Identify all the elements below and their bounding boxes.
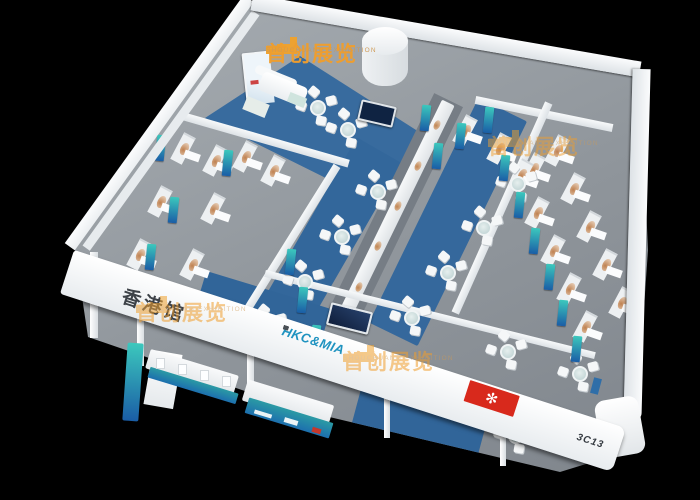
chair	[455, 259, 467, 270]
cubicle-pod	[175, 250, 215, 282]
chair	[349, 223, 361, 234]
teal-banner	[167, 197, 179, 224]
glass-table	[370, 184, 386, 200]
watermark-latin-text: SHOUCHUANG EXHIBITION	[136, 306, 247, 313]
chair	[355, 183, 367, 195]
chair	[577, 381, 588, 392]
chair	[312, 268, 324, 279]
pod-desk	[537, 214, 555, 227]
chair	[325, 121, 337, 133]
chair	[461, 219, 473, 231]
brochure-holder	[156, 358, 165, 369]
chair	[385, 178, 397, 189]
chair	[319, 228, 331, 240]
glass-table	[340, 122, 356, 138]
booth-number: 3C13	[575, 432, 605, 451]
chair	[339, 244, 350, 255]
booth-render-scene: 香港馆 HKC&MIA ✻ 3C13 首创展览SHOUCHUANG EXHIBI…	[0, 0, 700, 500]
front-left-banner	[122, 343, 143, 422]
pod-desk	[273, 172, 291, 185]
chair	[525, 170, 537, 181]
cubicle-pod	[552, 274, 592, 306]
pod-desk	[213, 210, 231, 223]
chair	[345, 137, 356, 148]
glass-table	[500, 344, 516, 360]
cubicle-pod	[536, 236, 576, 268]
pod-desk	[553, 252, 571, 265]
glass-table	[476, 220, 492, 236]
chair	[491, 214, 503, 225]
meeting-table-group	[390, 298, 434, 338]
watermark-latin-text: SHOUCHUANG EXHIBITION	[266, 47, 377, 54]
brochure-holder	[200, 370, 209, 381]
chair	[389, 309, 401, 321]
chair	[445, 280, 456, 291]
cubicle-pod	[572, 212, 612, 244]
chair	[425, 264, 437, 276]
brochure-holder	[178, 364, 187, 375]
glass-table	[510, 176, 526, 192]
chair	[513, 443, 524, 454]
meeting-table-group	[462, 208, 506, 248]
chair	[315, 115, 326, 126]
brochure-holder	[222, 376, 231, 387]
chair	[481, 235, 492, 246]
hk-flag-emblem-icon: ✻	[483, 389, 500, 407]
cubicle-pod	[588, 250, 628, 282]
teal-banner	[431, 143, 443, 170]
watermark-latin-text: SHOUCHUANG EXHIBITION	[343, 355, 454, 362]
glass-table	[404, 310, 420, 326]
glass-table	[572, 366, 588, 382]
cubicle-pod	[256, 156, 296, 188]
pod-desk	[585, 328, 603, 341]
glass-table	[334, 229, 350, 245]
meeting-table-group	[486, 332, 530, 372]
teal-banner	[556, 300, 568, 327]
chair	[419, 304, 431, 315]
chair	[557, 365, 569, 377]
pod-desk	[605, 266, 623, 279]
pod-desk	[569, 290, 587, 303]
chair	[325, 94, 337, 105]
chair	[515, 338, 527, 349]
meeting-table-group	[426, 253, 470, 293]
chair	[375, 199, 386, 210]
pod-desk	[465, 132, 483, 145]
cubicle-pod	[556, 174, 596, 206]
watermark-latin-text: SHOUCHUANG EXHIBITION	[488, 140, 599, 147]
chair	[587, 360, 599, 371]
chair	[505, 359, 516, 370]
glass-table	[440, 265, 456, 281]
chair	[409, 325, 420, 336]
pod-desk	[192, 266, 210, 279]
cubicle-pod	[196, 194, 236, 226]
pod-desk	[589, 228, 607, 241]
pod-desk	[573, 190, 591, 203]
glass-table	[310, 100, 326, 116]
chair	[485, 343, 497, 355]
meeting-table-group	[320, 217, 364, 257]
